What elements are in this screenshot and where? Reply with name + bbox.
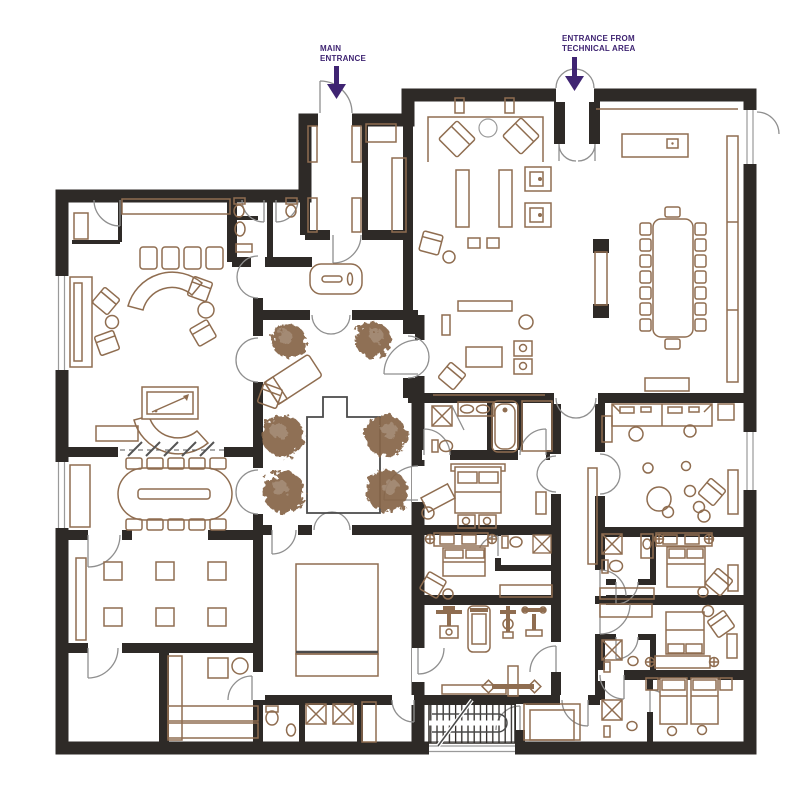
reception <box>310 264 362 294</box>
vestibule <box>308 124 406 232</box>
dining-table <box>118 468 232 520</box>
bed <box>667 547 705 587</box>
reception-table <box>310 264 362 294</box>
room-dining <box>70 458 232 530</box>
gym-machine <box>436 606 462 638</box>
airlock-wall-right <box>589 100 600 144</box>
floor-plan <box>0 0 800 793</box>
room-games <box>76 558 226 640</box>
gym-machine <box>522 607 546 636</box>
room-kitchen <box>168 656 258 740</box>
great-hall <box>419 98 738 395</box>
staircase <box>429 700 515 746</box>
bed <box>666 612 704 654</box>
wardrobe-hatch <box>522 401 552 451</box>
window-counter <box>727 136 738 382</box>
hall-partition <box>593 239 609 318</box>
pool-table <box>142 387 198 419</box>
utility-room <box>524 704 580 740</box>
room-gym <box>436 606 546 696</box>
conference-table <box>640 207 706 349</box>
gym-machine <box>500 606 516 638</box>
airlock-wall-left <box>554 100 565 144</box>
lounge-chair <box>265 354 323 404</box>
room-living <box>70 199 230 456</box>
window-seat <box>70 465 90 527</box>
floor-plan-canvas: MAIN ENTRANCE ENTRANCE FROM TECHNICAL AR… <box>0 0 800 793</box>
room-pool <box>296 564 378 676</box>
bed <box>660 678 687 724</box>
main-entrance-label: MAIN ENTRANCE <box>320 44 400 65</box>
technical-entrance-arrow <box>565 57 584 91</box>
lounge-platform <box>428 117 543 162</box>
treadmill <box>468 606 490 652</box>
technical-entrance-label: ENTRANCE FROM TECHNICAL AREA <box>562 34 662 55</box>
pool <box>296 564 378 654</box>
curved-sofa <box>128 272 202 310</box>
bedroom-right-c <box>602 678 732 737</box>
room-playroom <box>602 404 738 522</box>
bedroom-right-a <box>600 533 738 599</box>
courtyard-trees <box>262 322 408 513</box>
bed <box>691 678 718 724</box>
bedroom-middle-1 <box>421 464 546 528</box>
bathroom-block <box>432 401 552 452</box>
bed <box>455 467 501 513</box>
pool-steps <box>296 654 378 676</box>
wardrobe-hatch <box>600 604 652 617</box>
